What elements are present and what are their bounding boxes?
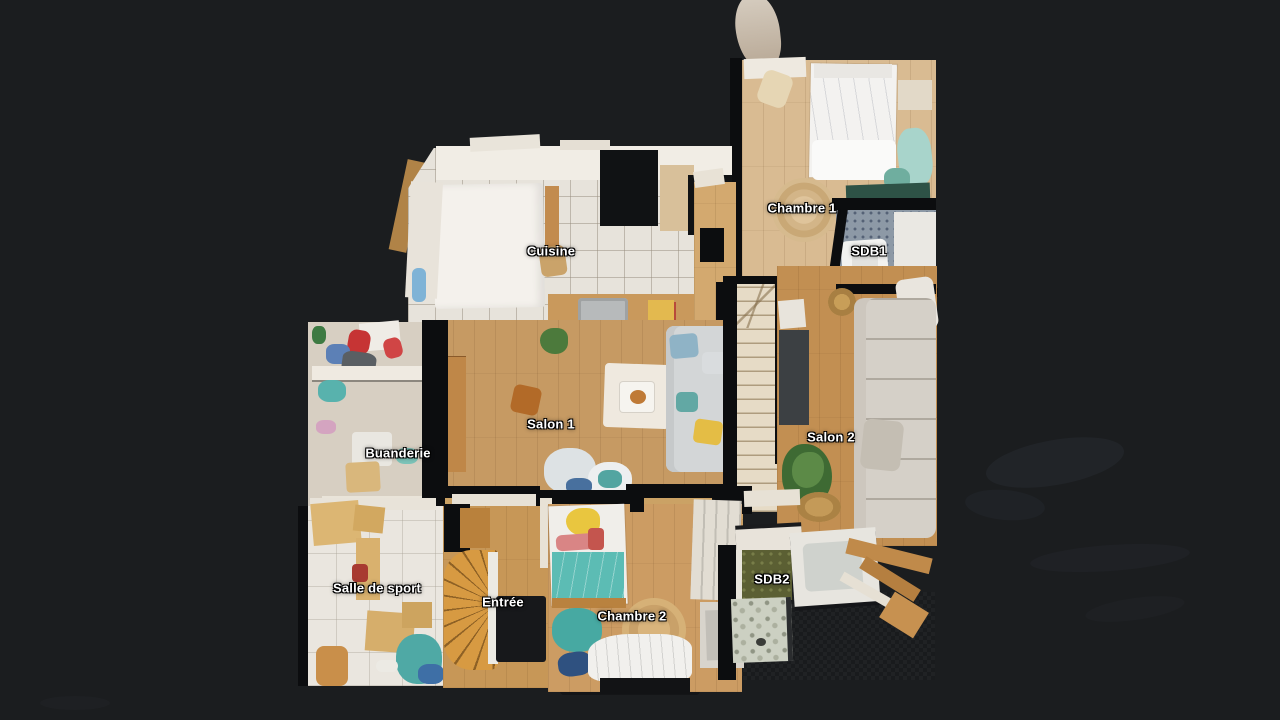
ghost-shape: [1029, 539, 1190, 576]
ghost-shape: [1084, 591, 1186, 627]
wall: [422, 320, 448, 512]
bed-clutter-red: [588, 528, 604, 550]
clutter-green: [312, 326, 326, 344]
wall: [630, 498, 644, 512]
gym-bag: [352, 564, 368, 582]
wall-white: [778, 299, 806, 329]
duvet: [588, 634, 692, 682]
clutter-pink: [316, 420, 336, 434]
tv-console: [779, 330, 809, 425]
cardboard-box: [402, 602, 432, 628]
cardboard-box: [353, 505, 386, 534]
blanket-teal: [552, 552, 624, 602]
throw-blanket: [859, 418, 904, 472]
bottle: [412, 268, 426, 302]
clutter-teal: [318, 380, 346, 402]
basket: [828, 288, 856, 316]
pillow: [814, 64, 892, 78]
cushion: [692, 418, 723, 446]
cat-tree: [316, 646, 348, 686]
stair-step: [460, 508, 490, 548]
cushion: [676, 392, 698, 412]
scan-hole: [600, 150, 658, 226]
ghost-shape: [964, 487, 1046, 524]
wall: [298, 506, 308, 686]
wood-post: [545, 186, 559, 250]
wall-white: [736, 550, 742, 600]
room-label-salle-de-sport[interactable]: Salle de sport: [333, 581, 421, 596]
room-label-cuisine[interactable]: Cuisine: [527, 244, 575, 259]
room-label-salon-1[interactable]: Salon 1: [527, 417, 575, 432]
tray: [630, 390, 646, 404]
room-label-chambre-1[interactable]: Chambre 1: [768, 201, 837, 216]
laundry-basket: [345, 461, 381, 493]
bed-frame: [552, 598, 626, 608]
room-label-sdb2[interactable]: SDB2: [754, 572, 789, 587]
room-label-sdb1[interactable]: SDB1: [851, 244, 886, 259]
shelf-board: [312, 366, 430, 380]
plant: [540, 328, 568, 354]
room-label-salon-2[interactable]: Salon 2: [807, 430, 855, 445]
stair-winders: [735, 282, 777, 328]
ghost-shape: [40, 696, 110, 710]
sneaker: [376, 660, 398, 672]
floorplan-viewer-canvas[interactable]: Cuisine Chambre 1 SDB1 Salon 1 Salon 2 B…: [0, 0, 1280, 720]
ghost-shape: [982, 428, 1128, 497]
wall: [700, 228, 724, 262]
laundry-teal: [598, 470, 622, 488]
sofa: [854, 298, 936, 538]
wall: [723, 278, 737, 512]
cabinet: [448, 356, 466, 472]
clothes-blue: [418, 664, 444, 684]
cushion: [669, 333, 699, 359]
shower-drain: [756, 638, 766, 646]
nightstand: [898, 80, 932, 110]
armchair: [509, 383, 542, 416]
jute-rug: [797, 492, 841, 522]
room-label-entree[interactable]: Entrée: [482, 595, 524, 610]
wall: [832, 198, 936, 210]
shower-floor: [731, 597, 793, 663]
wall-white: [744, 489, 801, 507]
counter-clutter: [560, 140, 610, 150]
scan-hole: [600, 678, 690, 694]
room-label-buanderie[interactable]: Buanderie: [365, 446, 430, 461]
room-label-chambre-2[interactable]: Chambre 2: [598, 609, 667, 624]
